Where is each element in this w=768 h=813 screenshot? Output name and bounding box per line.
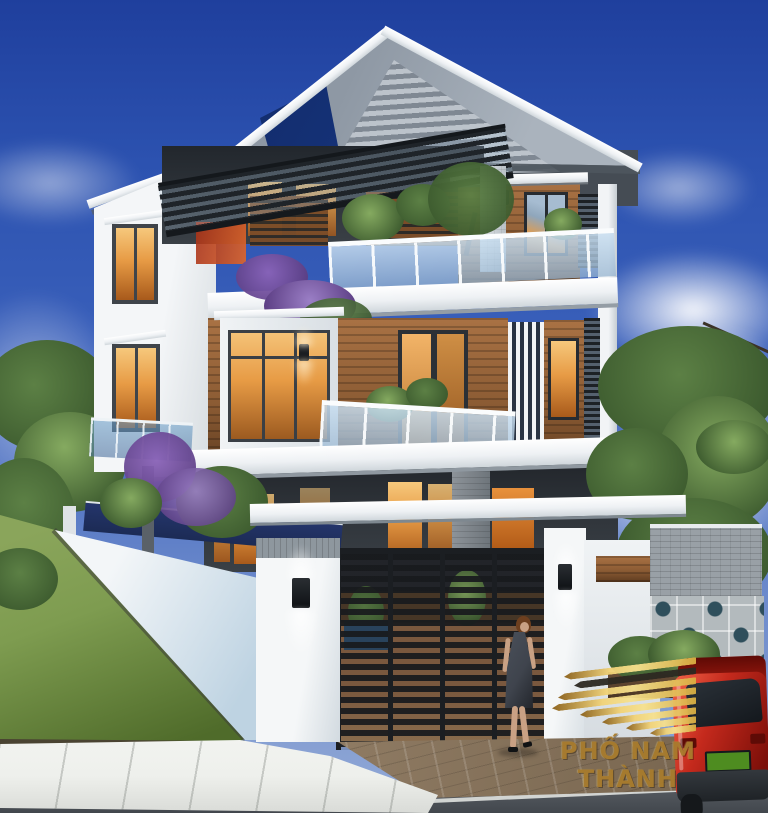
- sconce-glow: [292, 360, 316, 386]
- watermark-brand-text: PHỐ NAM THÀNH: [506, 737, 750, 793]
- woman-face: [520, 622, 529, 632]
- sconce-glow: [551, 592, 581, 632]
- purple-tree: [156, 468, 236, 526]
- sconce-glow: [284, 544, 318, 580]
- window-mullion: [135, 348, 138, 428]
- window-mullion: [134, 228, 137, 300]
- window-3f-left: [112, 224, 158, 304]
- gate-sconce: [292, 578, 310, 608]
- bay-window-frame: [228, 330, 330, 442]
- wood-inlay: [596, 556, 652, 582]
- car-rear-window: [685, 678, 763, 728]
- gate-sconce: [558, 564, 572, 590]
- rendering-canvas: PHỐ NAM THÀNH: [0, 0, 768, 813]
- balcony-plant: [342, 194, 404, 242]
- garden-foliage: [100, 478, 162, 528]
- window-glass: [551, 341, 576, 417]
- plumeria-crown: [428, 162, 514, 236]
- overhang-foliage: [696, 420, 768, 474]
- bay-mullion: [262, 333, 265, 439]
- car-taillight: [750, 733, 765, 744]
- corner-pier: [598, 184, 617, 472]
- wall-sconce: [299, 344, 309, 361]
- sconce-glow: [283, 610, 319, 658]
- bay-window-glass: [231, 333, 327, 439]
- sconce-glow: [292, 326, 316, 346]
- bay-transom: [231, 356, 327, 359]
- car-wheel: [680, 794, 703, 813]
- bay-mullion: [294, 333, 297, 439]
- window-2f-right: [548, 338, 579, 420]
